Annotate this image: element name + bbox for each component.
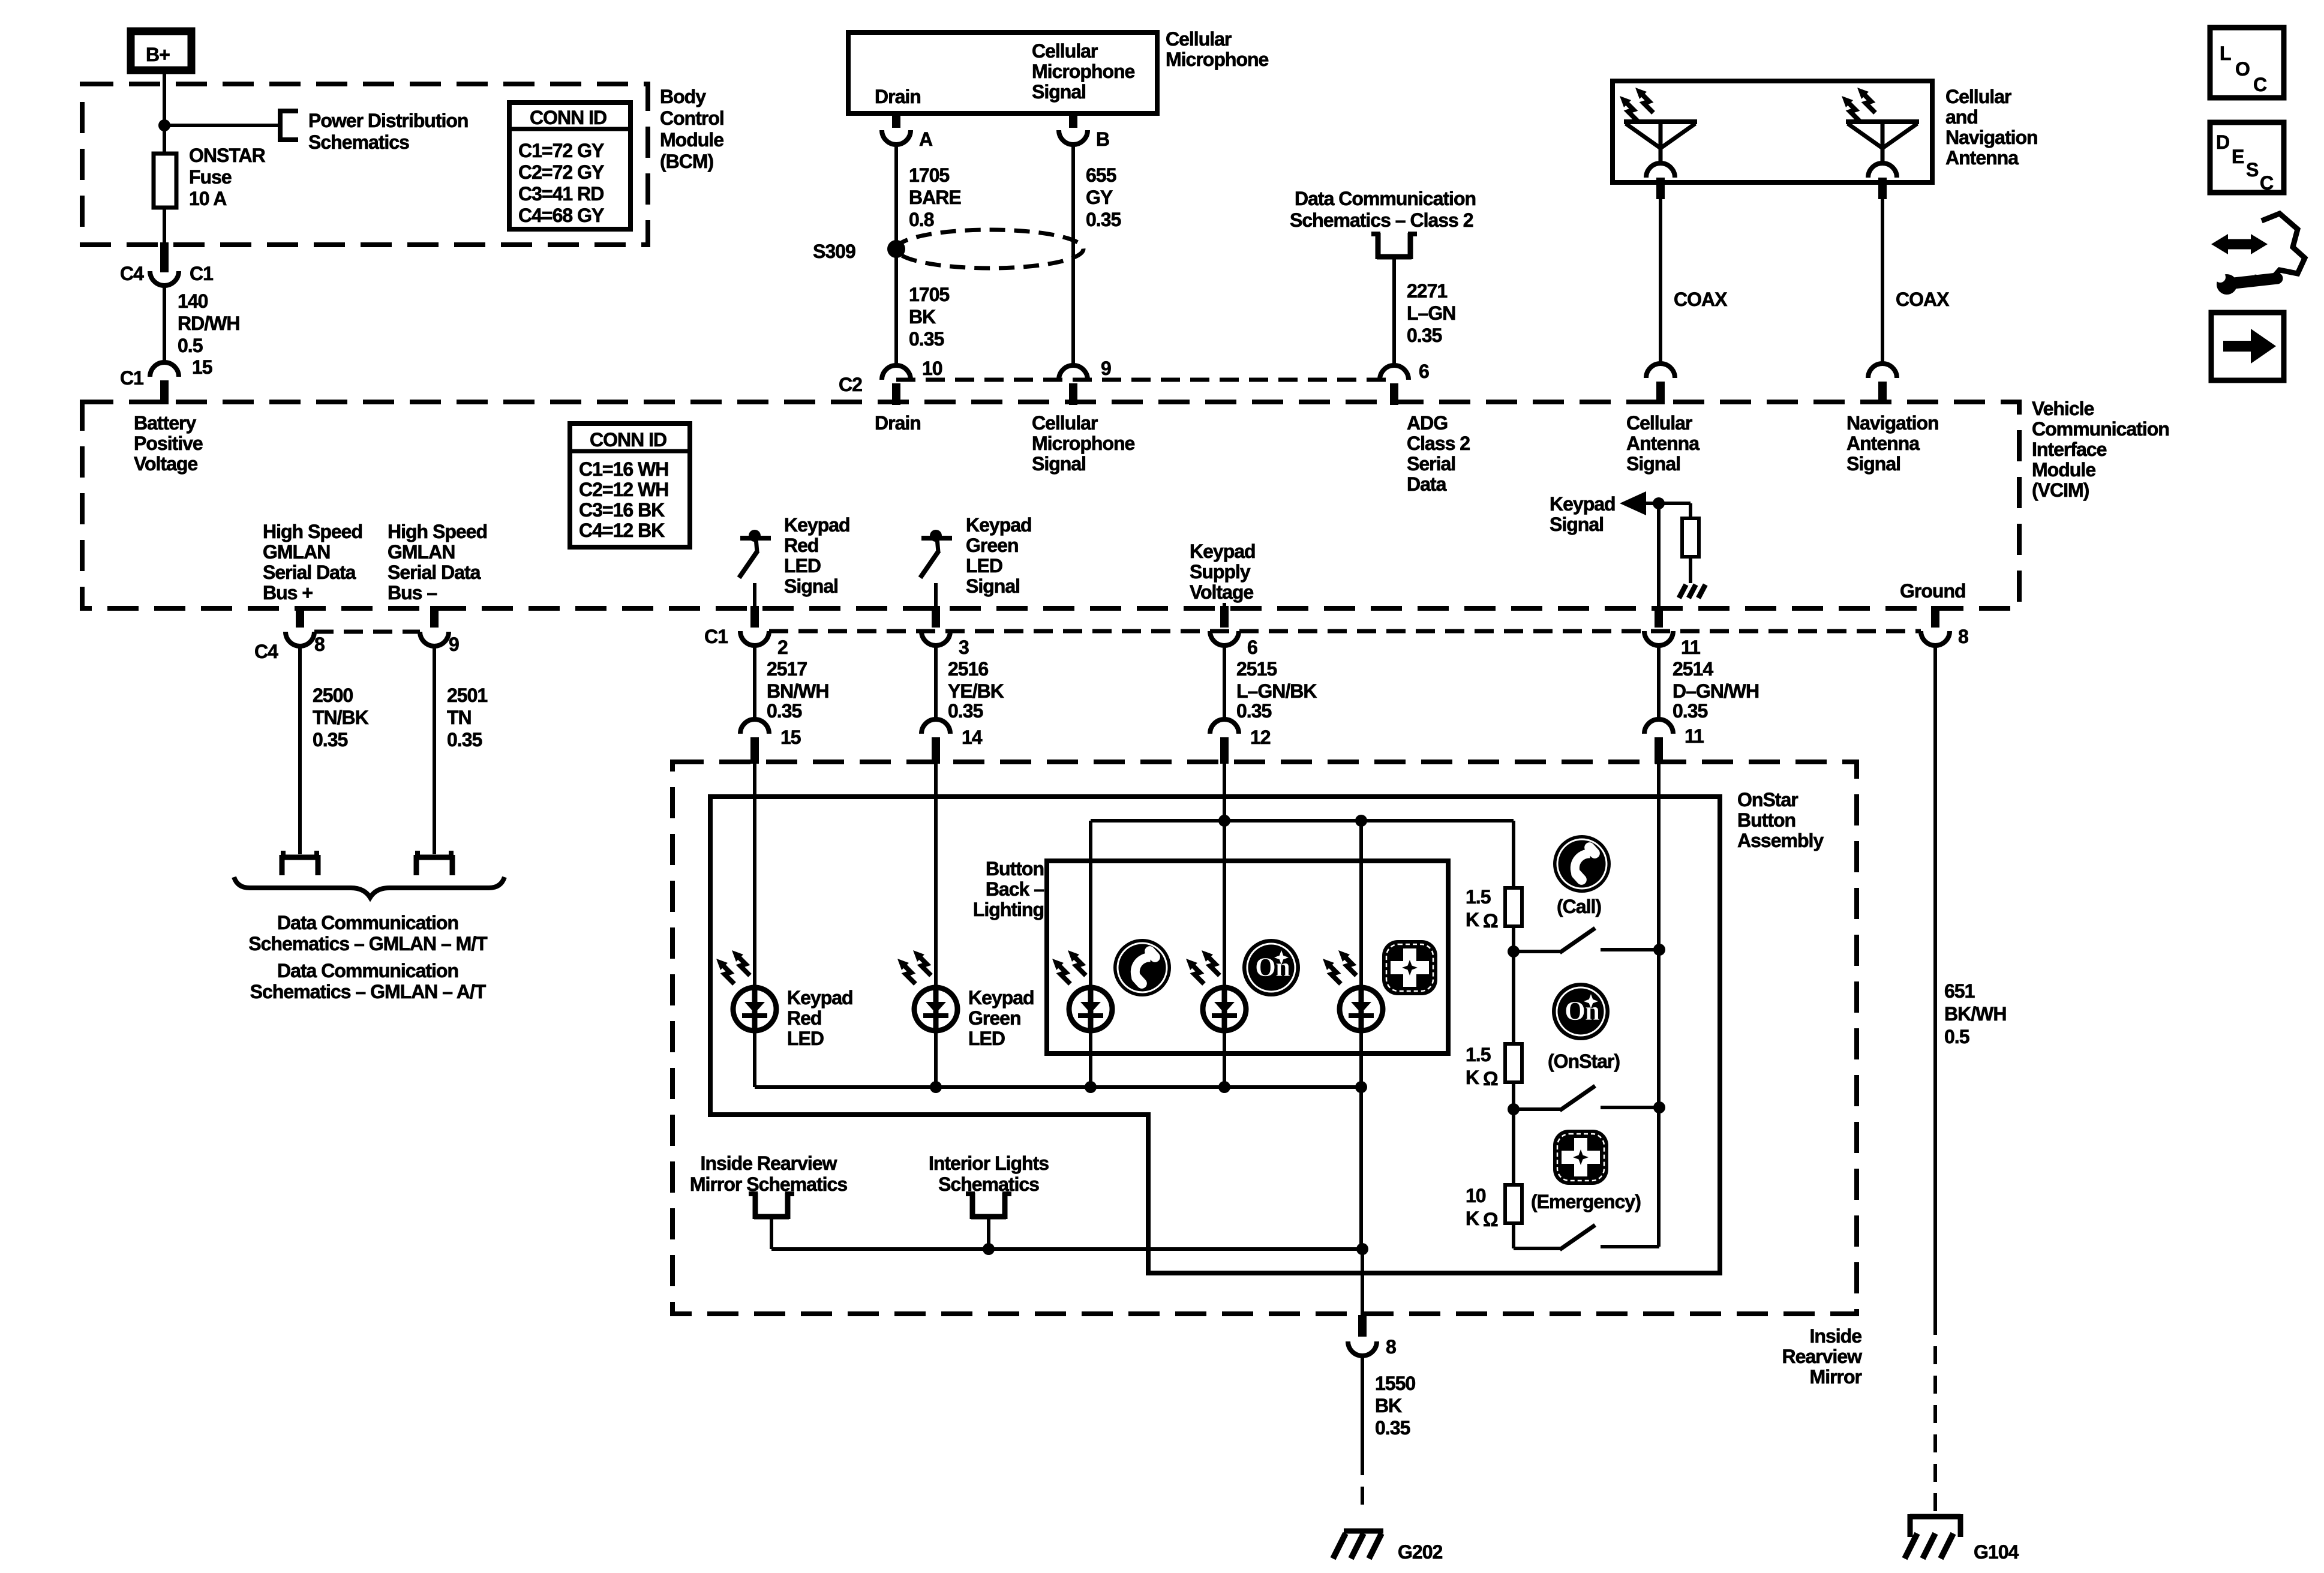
svg-text:Keypad: Keypad [1550, 493, 1616, 515]
svg-text:6: 6 [1419, 361, 1429, 382]
svg-text:GMLAN: GMLAN [388, 541, 455, 563]
svg-text:2516: 2516 [948, 658, 988, 680]
svg-text:Keypad: Keypad [784, 514, 850, 536]
svg-text:0.8: 0.8 [909, 209, 934, 230]
svg-text:Keypad: Keypad [1190, 541, 1256, 562]
svg-text:C1=16 WH: C1=16 WH [579, 458, 668, 480]
svg-text:C3=16 BK: C3=16 BK [579, 499, 665, 521]
svg-text:Data: Data [1407, 473, 1447, 495]
svg-text:0.5: 0.5 [1944, 1026, 1969, 1047]
svg-text:Serial Data: Serial Data [388, 562, 481, 583]
svg-text:Rearview: Rearview [1782, 1346, 1862, 1367]
svg-text:C2=12 WH: C2=12 WH [579, 479, 668, 500]
svg-text:11: 11 [1681, 637, 1700, 658]
svg-text:6: 6 [1247, 637, 1257, 658]
svg-text:1705: 1705 [909, 164, 949, 186]
svg-text:8: 8 [1386, 1336, 1396, 1358]
svg-text:0.35: 0.35 [447, 729, 482, 751]
svg-text:C4: C4 [120, 263, 144, 284]
svg-text:Antenna: Antenna [1626, 433, 1700, 454]
svg-text:11: 11 [1685, 725, 1704, 747]
svg-text:Ground: Ground [1900, 580, 1966, 602]
svg-text:Signal: Signal [1032, 81, 1086, 103]
svg-text:Communication: Communication [2032, 418, 2169, 440]
svg-text:2517: 2517 [767, 658, 807, 680]
svg-text:Cellular: Cellular [1032, 40, 1098, 62]
svg-text:G202: G202 [1398, 1541, 1442, 1563]
svg-text:LED: LED [968, 1028, 1005, 1049]
svg-text:B+: B+ [146, 44, 170, 65]
svg-text:Supply: Supply [1190, 561, 1251, 583]
svg-text:655: 655 [1086, 164, 1116, 186]
svg-text:Assembly: Assembly [1737, 830, 1824, 851]
svg-text:(Call): (Call) [1557, 896, 1601, 917]
svg-text:Ω: Ω [1483, 910, 1498, 932]
svg-text:BARE: BARE [909, 187, 961, 208]
svg-text:GY: GY [1086, 187, 1113, 208]
svg-text:Voltage: Voltage [1190, 581, 1253, 603]
svg-text:Cellular: Cellular [1166, 28, 1232, 50]
svg-text:C4=12 BK: C4=12 BK [579, 520, 665, 541]
svg-text:15: 15 [192, 356, 212, 378]
svg-text:Signal: Signal [784, 575, 838, 597]
svg-text:Red: Red [787, 1007, 821, 1029]
svg-text:0.35: 0.35 [1673, 700, 1707, 722]
svg-text:Navigation: Navigation [1846, 412, 1939, 434]
svg-text:0.35: 0.35 [909, 328, 944, 350]
svg-text:Bus –: Bus – [388, 582, 437, 604]
svg-text:G104: G104 [1974, 1541, 2019, 1563]
svg-text:Schematics: Schematics [938, 1173, 1039, 1195]
svg-text:Schematics: Schematics [308, 131, 409, 153]
svg-text:LED: LED [966, 555, 1002, 577]
svg-text:C4: C4 [254, 641, 278, 662]
svg-text:Cellular: Cellular [1032, 412, 1098, 434]
svg-text:CONN ID: CONN ID [530, 107, 606, 128]
svg-text:RD/WH: RD/WH [178, 313, 239, 334]
svg-text:BK: BK [909, 306, 936, 328]
svg-text:Ω: Ω [1483, 1068, 1498, 1089]
svg-text:O: O [2235, 58, 2250, 80]
svg-text:1550: 1550 [1375, 1373, 1415, 1394]
svg-text:L–GN: L–GN [1407, 302, 1455, 324]
svg-text:C2=72 GY: C2=72 GY [518, 161, 604, 183]
svg-text:Data Communication: Data Communication [1295, 188, 1476, 209]
svg-text:E: E [2232, 146, 2244, 167]
svg-text:Bus +: Bus + [263, 582, 313, 604]
svg-text:0.35: 0.35 [1236, 700, 1271, 722]
svg-text:Interior Lights: Interior Lights [929, 1152, 1049, 1174]
svg-text:0.35: 0.35 [1375, 1417, 1410, 1439]
svg-text:Navigation: Navigation [1945, 127, 2038, 148]
svg-text:YE/BK: YE/BK [948, 680, 1004, 702]
svg-text:Interface: Interface [2032, 439, 2107, 460]
svg-text:OnStar: OnStar [1737, 789, 1798, 810]
svg-text:ONSTAR: ONSTAR [189, 145, 266, 166]
svg-text:Cellular: Cellular [1945, 86, 2011, 107]
svg-text:Signal: Signal [1550, 514, 1604, 535]
svg-text:Class 2: Class 2 [1407, 433, 1470, 454]
svg-text:Cellular: Cellular [1626, 412, 1692, 434]
svg-text:Signal: Signal [1032, 453, 1086, 475]
svg-text:14: 14 [962, 727, 983, 748]
svg-text:Lighting: Lighting [973, 899, 1044, 920]
svg-text:K: K [1466, 1067, 1479, 1088]
svg-text:Green: Green [966, 535, 1018, 556]
svg-text:High Speed: High Speed [388, 521, 487, 542]
svg-text:Keypad: Keypad [966, 514, 1032, 536]
svg-text:Antenna: Antenna [1945, 147, 2019, 169]
svg-text:2515: 2515 [1236, 658, 1277, 680]
svg-text:Inside: Inside [1810, 1325, 1862, 1347]
svg-text:Button: Button [986, 858, 1044, 879]
svg-text:L–GN/BK: L–GN/BK [1236, 680, 1317, 702]
svg-text:3: 3 [959, 637, 969, 658]
svg-text:D: D [2216, 131, 2229, 153]
svg-text:BK: BK [1375, 1395, 1402, 1416]
svg-text:0.35: 0.35 [767, 700, 801, 722]
svg-text:COAX: COAX [1896, 289, 1950, 310]
svg-text:B: B [1096, 128, 1109, 150]
svg-text:ADG: ADG [1407, 412, 1448, 434]
svg-text:Serial: Serial [1407, 453, 1455, 475]
svg-text:C1: C1 [190, 263, 213, 284]
svg-text:Inside Rearview: Inside Rearview [701, 1152, 837, 1174]
svg-text:0.5: 0.5 [178, 335, 203, 356]
svg-text:10: 10 [1466, 1185, 1486, 1206]
svg-text:Module: Module [660, 129, 723, 151]
svg-text:Signal: Signal [1626, 453, 1680, 475]
svg-text:(BCM): (BCM) [660, 151, 714, 172]
svg-text:S: S [2246, 159, 2259, 181]
svg-text:651: 651 [1944, 980, 1975, 1002]
svg-text:Keypad: Keypad [787, 987, 853, 1008]
svg-text:2271: 2271 [1407, 280, 1447, 302]
svg-text:2501: 2501 [447, 685, 487, 706]
svg-text:Drain: Drain [875, 412, 921, 434]
svg-text:Microphone: Microphone [1032, 61, 1135, 82]
svg-text:12: 12 [1250, 727, 1271, 748]
svg-text:9: 9 [449, 634, 459, 655]
svg-text:10 A: 10 A [189, 188, 227, 209]
svg-text:Voltage: Voltage [134, 453, 197, 475]
svg-text:0.35: 0.35 [1407, 325, 1442, 346]
svg-text:Battery: Battery [134, 412, 196, 434]
svg-text:1.5: 1.5 [1466, 886, 1491, 908]
svg-text:LED: LED [784, 555, 821, 577]
svg-text:Back –: Back – [986, 878, 1044, 900]
svg-text:Data Communication: Data Communication [277, 912, 458, 933]
svg-text:Positive: Positive [134, 433, 203, 454]
svg-text:BK/WH: BK/WH [1944, 1003, 2006, 1025]
svg-text:Button: Button [1737, 809, 1795, 831]
svg-text:(VCIM): (VCIM) [2032, 479, 2089, 501]
svg-text:Fuse: Fuse [189, 166, 232, 188]
svg-text:C3=41 RD: C3=41 RD [518, 183, 603, 205]
svg-text:BN/WH: BN/WH [767, 680, 828, 702]
svg-text:Schematics – GMLAN – M/T: Schematics – GMLAN – M/T [248, 933, 488, 954]
svg-text:C1: C1 [120, 367, 143, 389]
svg-text:Schematics – GMLAN – A/T: Schematics – GMLAN – A/T [250, 981, 487, 1002]
svg-text:0.35: 0.35 [313, 729, 347, 751]
svg-text:LED: LED [787, 1028, 824, 1049]
svg-text:C: C [2253, 74, 2267, 95]
svg-text:140: 140 [178, 290, 208, 312]
svg-text:10: 10 [922, 358, 942, 379]
svg-text:Drain: Drain [875, 86, 921, 107]
svg-text:0.35: 0.35 [948, 700, 983, 722]
svg-text:Data Communication: Data Communication [277, 960, 458, 981]
svg-text:and: and [1945, 106, 1978, 128]
svg-text:0.35: 0.35 [1086, 209, 1121, 230]
svg-text:Microphone: Microphone [1166, 49, 1269, 70]
svg-text:2500: 2500 [313, 685, 353, 706]
svg-text:Mirror Schematics: Mirror Schematics [690, 1173, 847, 1195]
svg-text:2: 2 [777, 637, 788, 658]
svg-text:K: K [1466, 909, 1479, 930]
svg-text:15: 15 [780, 727, 801, 748]
svg-text:9: 9 [1101, 358, 1111, 379]
svg-text:8: 8 [314, 634, 325, 655]
svg-text:CONN ID: CONN ID [590, 429, 666, 451]
svg-text:1.5: 1.5 [1466, 1044, 1491, 1065]
svg-text:Keypad: Keypad [968, 987, 1034, 1008]
svg-text:1705: 1705 [909, 284, 949, 305]
svg-text:K: K [1466, 1208, 1479, 1229]
svg-text:C: C [2260, 172, 2274, 194]
svg-text:Module: Module [2032, 459, 2095, 481]
svg-text:COAX: COAX [1674, 289, 1728, 310]
svg-text:GMLAN: GMLAN [263, 541, 330, 563]
svg-text:L: L [2220, 43, 2231, 64]
svg-text:Power Distribution: Power Distribution [308, 110, 468, 131]
svg-text:Signal: Signal [1846, 453, 1900, 475]
svg-text:Ω: Ω [1483, 1209, 1498, 1230]
svg-text:2514: 2514 [1673, 658, 1713, 680]
svg-text:Antenna: Antenna [1846, 433, 1920, 454]
svg-text:D–GN/WH: D–GN/WH [1673, 680, 1759, 702]
svg-text:Green: Green [968, 1007, 1020, 1029]
svg-text:A: A [919, 128, 933, 150]
svg-text:Control: Control [660, 107, 724, 129]
svg-text:C1=72 GY: C1=72 GY [518, 140, 604, 161]
svg-text:(Emergency): (Emergency) [1531, 1191, 1641, 1212]
svg-text:C2: C2 [839, 374, 862, 395]
svg-text:(OnStar): (OnStar) [1548, 1050, 1620, 1072]
svg-text:C1: C1 [704, 626, 728, 647]
svg-text:TN/BK: TN/BK [313, 707, 369, 728]
svg-text:Body: Body [660, 86, 706, 107]
svg-text:S309: S309 [813, 241, 855, 262]
svg-text:TN: TN [447, 707, 472, 728]
svg-text:8: 8 [1958, 626, 1968, 647]
svg-text:C4=68 GY: C4=68 GY [518, 205, 604, 226]
svg-text:Mirror: Mirror [1810, 1366, 1862, 1388]
svg-text:Schematics – Class 2: Schematics – Class 2 [1290, 209, 1473, 231]
svg-text:Serial Data: Serial Data [263, 562, 356, 583]
svg-text:Red: Red [784, 535, 818, 556]
svg-text:Microphone: Microphone [1032, 433, 1135, 454]
svg-text:Vehicle: Vehicle [2032, 398, 2094, 419]
svg-text:Signal: Signal [966, 575, 1020, 597]
svg-text:High Speed: High Speed [263, 521, 362, 542]
